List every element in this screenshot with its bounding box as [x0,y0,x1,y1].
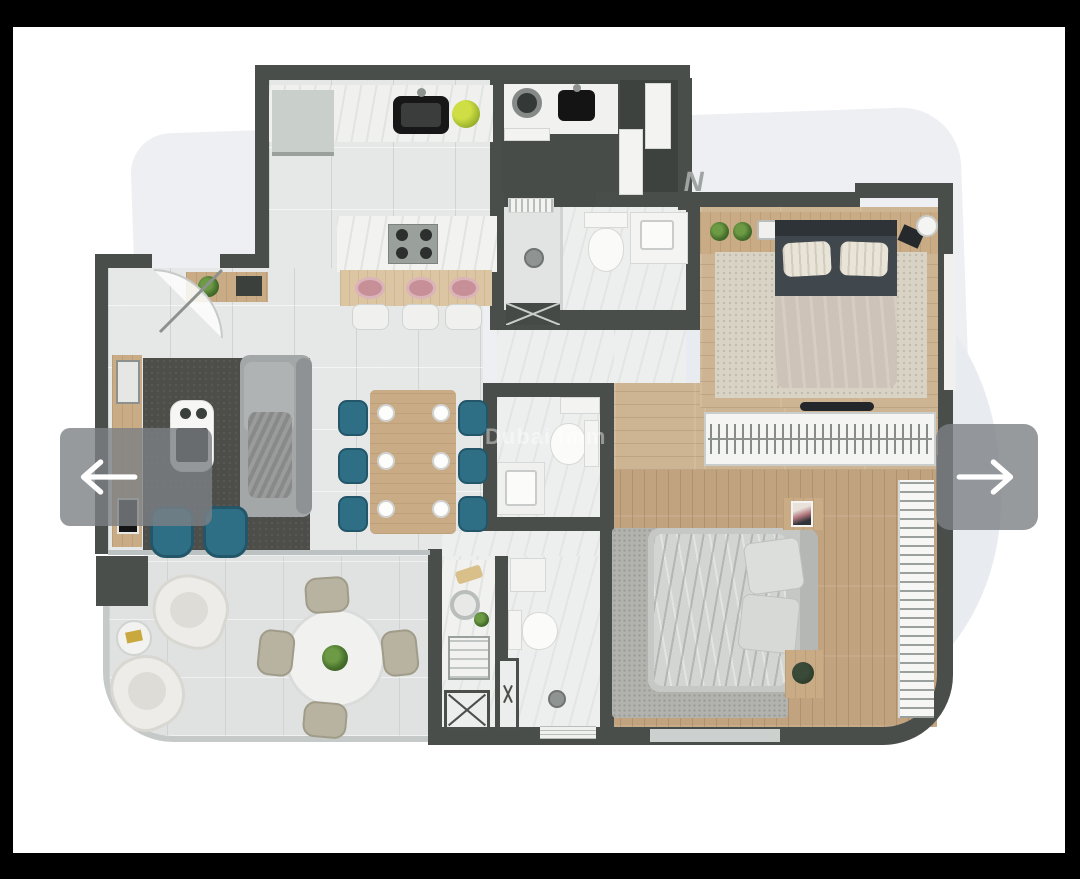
bed-1-pillow [839,241,888,277]
washbasin-2 [505,470,537,506]
dining-plate [432,452,450,470]
wall-kitchen-left [255,65,269,268]
tv-soundbar [800,402,874,411]
wicker-chair [304,576,350,615]
shower-glass [560,207,563,310]
hob-burner [420,247,432,259]
wicker-chair [256,628,297,678]
bed-1-pillow [782,241,832,277]
wall-kitchen-top [255,65,690,80]
place-setting [355,277,385,299]
toilet-1 [584,212,628,228]
laundry-shelf [504,128,550,141]
terrace-planter [96,556,148,606]
wall-entry-right [220,254,269,268]
bar-stool [352,304,389,330]
washing-machine [512,88,542,118]
dining-chair [458,400,488,436]
dining-chair [338,400,368,436]
towel-rail [508,198,554,213]
kitchen-cabinet [272,90,334,156]
toilet-3-tank [508,610,522,650]
wc-shelf [510,558,546,592]
hob-burner [420,229,432,241]
wall-bath2-bottom [483,517,614,531]
kitchen-faucet-icon [417,88,426,97]
bath-lobby-2-floor [442,531,614,556]
entry-door-swing [152,268,226,342]
wicker-chair [380,628,421,678]
plant-small [474,612,489,627]
fruit-bowl [452,100,480,128]
shower-drain-strip [540,726,596,739]
duct-shaft [506,303,560,325]
wall-bath2-top [483,383,614,397]
towel-shelf [448,636,490,680]
framed-photo [791,501,813,527]
duct-shaft-2 [444,690,490,730]
image-viewer: Dubai Imm N [0,0,1080,879]
wicker-chair [302,700,349,740]
dining-plate [377,500,395,518]
dining-chair [458,448,488,484]
next-image-button[interactable] [936,424,1038,530]
bed-1-duvet [775,296,897,388]
wardrobe-rail-bar [708,438,932,440]
dining-plate [377,404,395,422]
arrow-left-icon [75,453,139,501]
wall-terrace-divider [428,549,442,745]
sofa-backrest [296,358,312,514]
bedside-lamp [916,215,938,237]
toilet-1-bowl [588,228,624,272]
bath-lobby-floor [497,330,614,383]
washbasin-1 [640,220,674,250]
shower-head-icon [524,248,544,268]
curved-sofa-2-cushion [128,672,166,710]
dining-plate [432,500,450,518]
hob-burner [396,247,408,259]
gas-hob [388,224,438,264]
shelf-plant [733,222,752,241]
dining-plate [377,452,395,470]
curtain-wall [898,480,934,718]
bed-2-pillow [737,593,801,655]
laundry-sink [558,90,595,121]
hallway-marble-floor [614,330,686,383]
duct-shaft-3 [497,658,519,730]
console-box [236,276,262,296]
storage-panel [619,129,643,195]
laundry-faucet-icon [573,84,581,92]
previous-image-button[interactable] [60,428,212,526]
place-setting [449,277,479,299]
dining-chair [338,448,368,484]
table-cup [180,408,191,419]
cistern-shelf [560,397,600,414]
bed-2-pillow [743,536,806,595]
bed-1-headboard [775,220,897,236]
hob-burner [396,229,408,241]
kitchen-sink-basin [401,103,441,127]
table-cup [196,408,207,419]
watermark: Dubai Imm [485,424,606,450]
bedroom2-window [650,729,780,742]
nightstand-plant [792,662,814,684]
window-sill [944,254,956,390]
shelf-plant [710,222,729,241]
table-centerpiece [322,645,348,671]
dining-chair [338,496,368,532]
bar-stool [445,304,482,330]
curved-sofa-1-cushion [170,592,208,628]
sofa-throw-blanket [248,412,292,498]
arrow-right-icon [955,453,1019,501]
place-setting [406,277,436,299]
storage-panel [645,83,671,149]
shower-head-2-icon [548,690,566,708]
dining-chair [458,496,488,532]
bar-stool [402,304,439,330]
wall-mirror [116,360,140,404]
toilet-3-bowl [522,612,558,650]
dining-plate [432,404,450,422]
